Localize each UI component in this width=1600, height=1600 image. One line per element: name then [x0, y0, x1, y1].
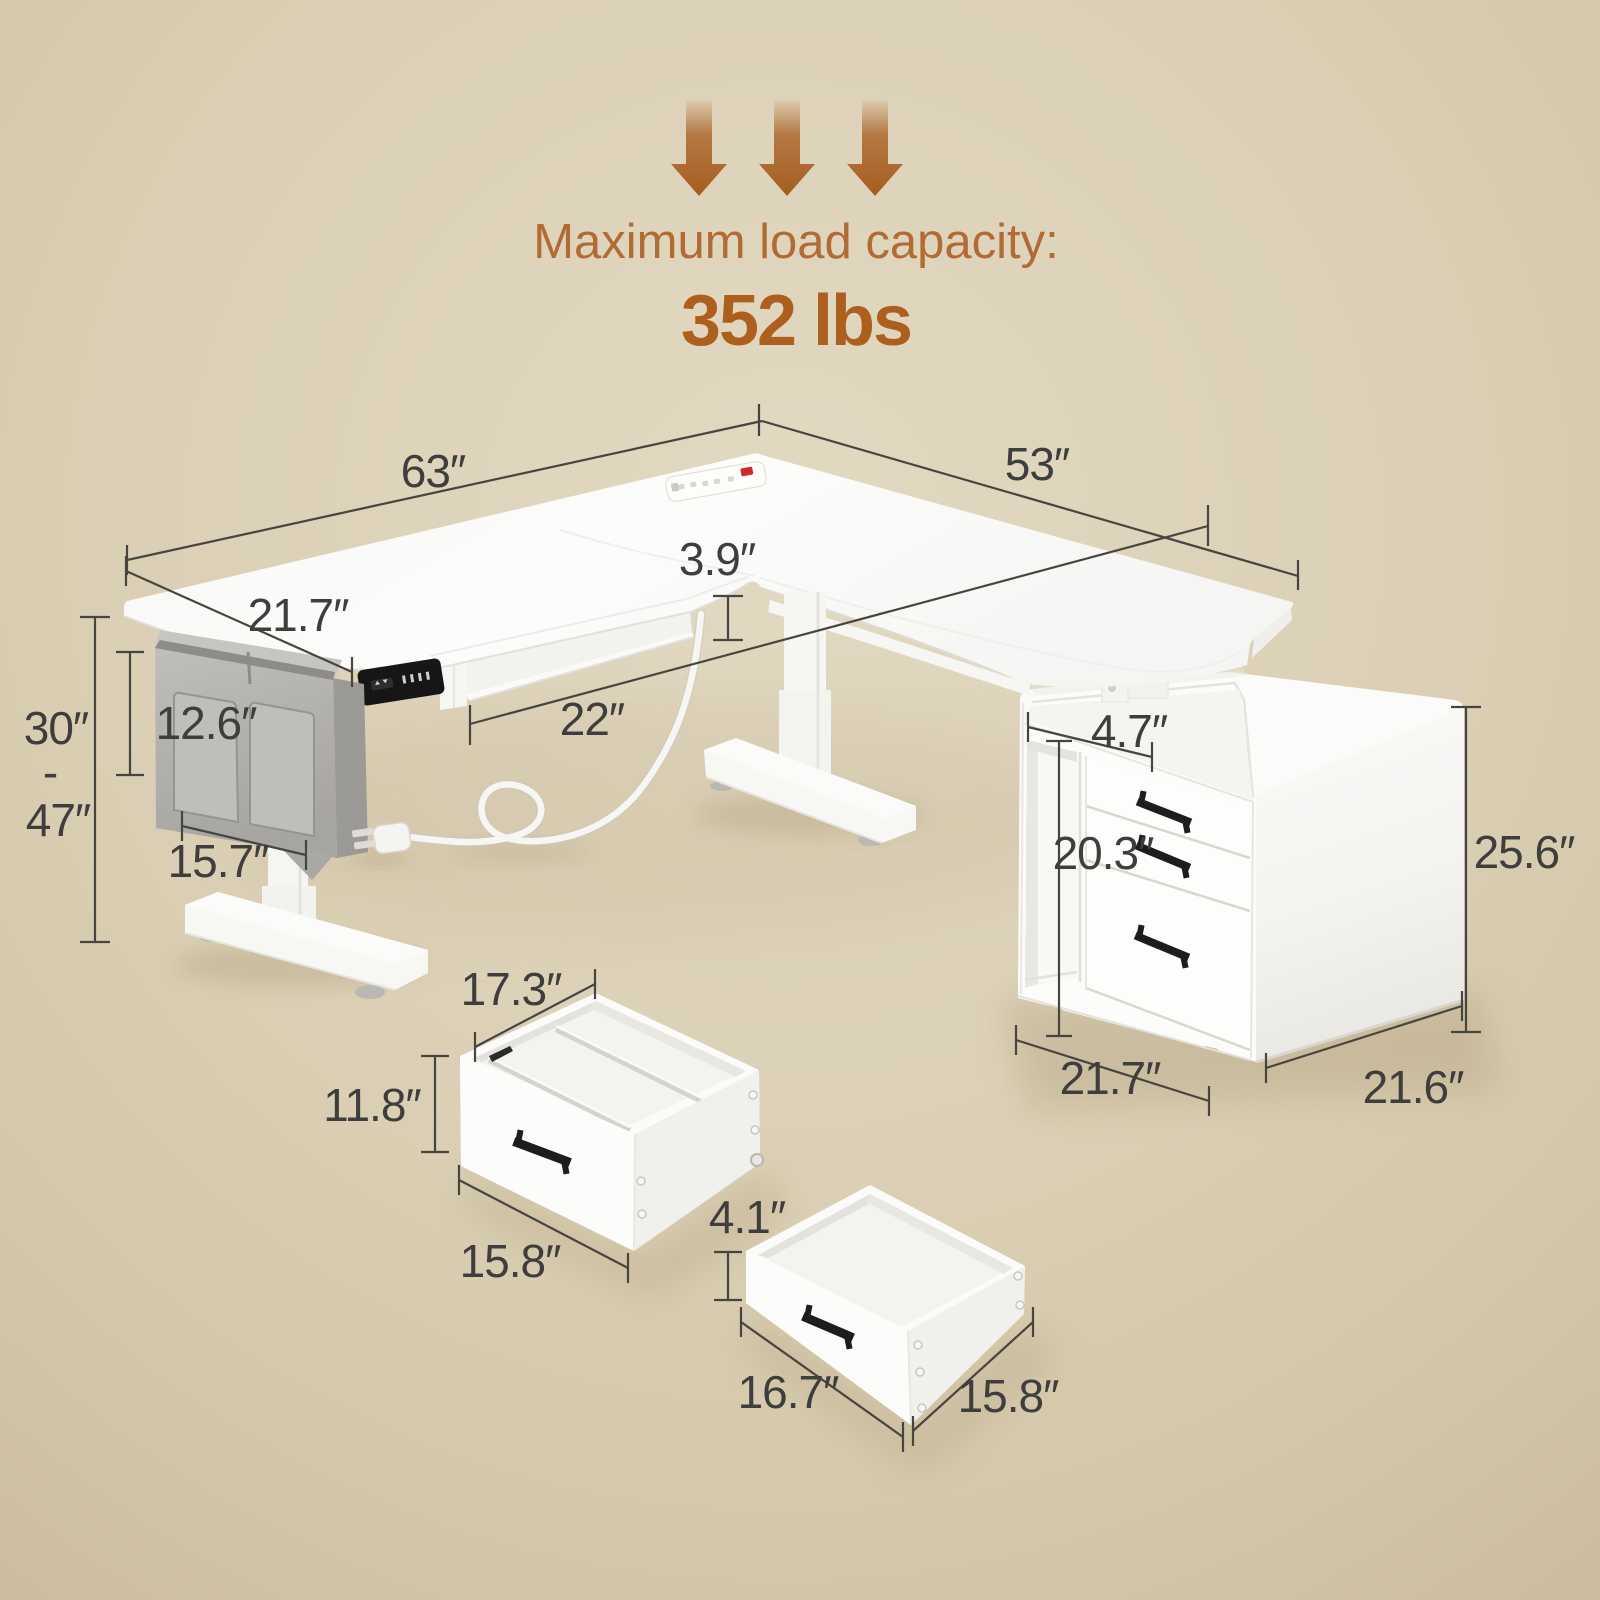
svg-text:25.6″: 25.6″: [1474, 826, 1576, 878]
svg-text:21.7″: 21.7″: [1060, 1052, 1162, 1104]
svg-text:53″: 53″: [1005, 438, 1070, 490]
svg-text:63″: 63″: [401, 445, 466, 497]
svg-text:4.7″: 4.7″: [1091, 705, 1168, 757]
svg-text:12.6″: 12.6″: [156, 697, 258, 749]
svg-text:15.8″: 15.8″: [958, 1370, 1060, 1422]
svg-text:17.3″: 17.3″: [461, 963, 563, 1015]
svg-text:-: -: [43, 746, 57, 798]
svg-text:47″: 47″: [26, 794, 91, 846]
svg-text:21.7″: 21.7″: [248, 589, 350, 641]
svg-text:Maximum load capacity:: Maximum load capacity:: [533, 215, 1059, 269]
svg-text:3.9″: 3.9″: [679, 533, 756, 585]
svg-text:11.8″: 11.8″: [323, 1079, 421, 1131]
svg-text:15.7″: 15.7″: [168, 835, 270, 887]
svg-text:4.1″: 4.1″: [709, 1191, 786, 1243]
svg-text:16.7″: 16.7″: [738, 1366, 840, 1418]
svg-text:20.3″: 20.3″: [1053, 827, 1155, 879]
svg-text:352 lbs: 352 lbs: [681, 281, 911, 361]
svg-text:15.8″: 15.8″: [460, 1235, 562, 1287]
svg-text:22″: 22″: [560, 693, 625, 745]
svg-text:21.6″: 21.6″: [1363, 1061, 1465, 1113]
